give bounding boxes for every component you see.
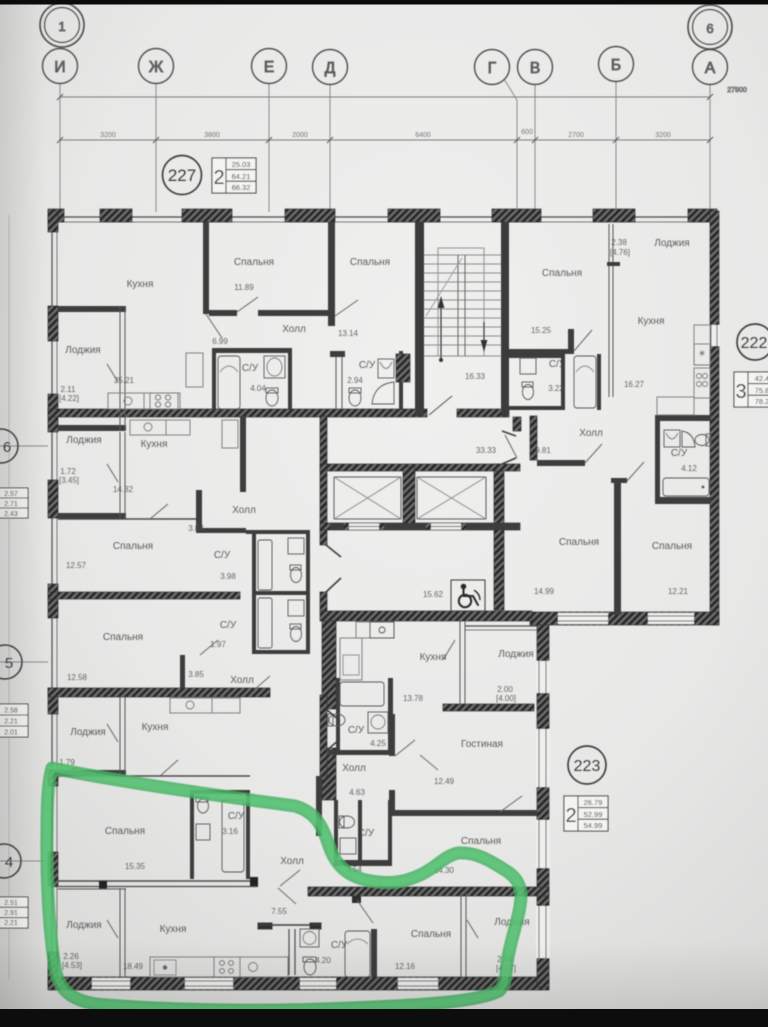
svg-text:4.25: 4.25	[370, 739, 386, 748]
svg-text:64.21: 64.21	[232, 172, 251, 181]
svg-text:7.55: 7.55	[271, 907, 287, 916]
svg-text:3.22: 3.22	[548, 384, 564, 393]
svg-text:Кухня: Кухня	[142, 722, 169, 733]
svg-text:3: 3	[735, 381, 746, 403]
svg-text:Г: Г	[488, 60, 497, 77]
svg-text:222: 222	[741, 335, 768, 352]
svg-text:Кухня: Кухня	[127, 279, 154, 290]
svg-text:15.62: 15.62	[423, 590, 444, 599]
svg-text:Лоджия: Лоджия	[66, 920, 101, 931]
svg-text:[4.76]: [4.76]	[610, 248, 630, 257]
svg-text:15.25: 15.25	[531, 326, 552, 335]
svg-text:14.32: 14.32	[113, 485, 134, 494]
svg-text:2.11: 2.11	[61, 385, 77, 394]
svg-text:25.21: 25.21	[114, 376, 135, 385]
svg-text:15.35: 15.35	[125, 862, 146, 871]
svg-text:Холл: Холл	[230, 675, 254, 686]
svg-text:Е: Е	[264, 59, 274, 76]
svg-text:Спальня: Спальня	[652, 541, 692, 552]
svg-text:27900: 27900	[727, 87, 747, 94]
svg-text:С/У: С/У	[242, 363, 259, 374]
svg-text:[4.22]: [4.22]	[59, 394, 79, 403]
svg-text:И: И	[54, 59, 65, 76]
svg-text:Лоджия: Лоджия	[70, 727, 105, 738]
svg-text:227: 227	[168, 166, 196, 185]
svg-text:Спальня: Спальня	[234, 257, 274, 268]
svg-text:Лоджия: Лоджия	[498, 649, 533, 660]
svg-text:Спальня: Спальня	[113, 541, 153, 552]
svg-text:Холл: Холл	[280, 856, 304, 867]
svg-text:✳: ✳	[699, 349, 706, 358]
svg-text:4.63: 4.63	[349, 788, 365, 797]
svg-text:26.79: 26.79	[584, 798, 603, 807]
svg-text:Кухня: Кухня	[638, 316, 665, 327]
svg-text:1.97: 1.97	[210, 640, 226, 649]
svg-text:1: 1	[58, 19, 65, 34]
svg-text:54.99: 54.99	[584, 821, 603, 830]
svg-text:25.03: 25.03	[232, 160, 251, 169]
svg-text:1.72: 1.72	[60, 467, 76, 476]
svg-text:Спальня: Спальня	[105, 826, 145, 837]
svg-text:14.99: 14.99	[534, 587, 555, 596]
svg-text:4.12: 4.12	[681, 464, 697, 473]
svg-text:Б: Б	[611, 57, 621, 74]
svg-text:Кухня: Кухня	[141, 439, 168, 450]
svg-text:2.38: 2.38	[611, 238, 627, 247]
svg-text:33.33: 33.33	[476, 446, 497, 455]
svg-text:Спальня: Спальня	[461, 836, 501, 847]
svg-text:Лоджия: Лоджия	[654, 238, 689, 249]
svg-text:Кухня: Кухня	[420, 652, 447, 663]
svg-text:11.89: 11.89	[234, 283, 254, 292]
svg-text:Холл: Холл	[282, 324, 306, 335]
svg-text:Лоджия: Лоджия	[66, 435, 101, 446]
svg-text:3.85: 3.85	[188, 670, 204, 679]
svg-text:12.49: 12.49	[434, 777, 455, 786]
svg-text:13.14: 13.14	[338, 329, 359, 338]
svg-text:С/У: С/У	[671, 448, 688, 459]
svg-text:В: В	[530, 60, 540, 77]
svg-text:Холл: Холл	[579, 428, 603, 439]
svg-text:75.8: 75.8	[755, 386, 768, 395]
svg-text:9.81: 9.81	[535, 446, 551, 455]
svg-text:Спальня: Спальня	[542, 268, 582, 279]
svg-text:Ж: Ж	[149, 59, 164, 76]
svg-text:[4.00]: [4.00]	[496, 694, 516, 703]
svg-text:С/У: С/У	[214, 550, 231, 561]
svg-text:Спальня: Спальня	[103, 632, 143, 643]
svg-text:Д: Д	[325, 60, 336, 77]
svg-text:223: 223	[574, 758, 601, 775]
svg-text:Холл: Холл	[232, 505, 256, 516]
svg-text:6.99: 6.99	[212, 337, 228, 346]
svg-text:12.21: 12.21	[668, 587, 689, 596]
svg-text:16.27: 16.27	[624, 380, 645, 389]
svg-text:С/У: С/У	[228, 811, 245, 822]
svg-text:3800: 3800	[204, 132, 220, 139]
svg-text:Спальня: Спальня	[559, 537, 599, 548]
svg-text:2: 2	[213, 167, 224, 189]
svg-text:Кухня: Кухня	[160, 924, 187, 935]
svg-text:78.2: 78.2	[755, 397, 768, 406]
svg-text:12.57: 12.57	[66, 561, 87, 570]
svg-text:2000: 2000	[292, 132, 308, 139]
svg-text:С/У: С/У	[220, 620, 237, 631]
svg-text:С/У: С/У	[549, 359, 566, 370]
svg-text:600: 600	[521, 129, 533, 136]
svg-text:С/У: С/У	[359, 360, 376, 371]
svg-text:С/У: С/У	[358, 828, 375, 839]
svg-text:С/У: С/У	[348, 725, 365, 736]
svg-text:6: 6	[706, 21, 713, 36]
svg-text:2.94: 2.94	[347, 376, 363, 385]
svg-text:3.98: 3.98	[220, 572, 236, 581]
svg-text:3.16: 3.16	[222, 827, 238, 836]
svg-text:6400: 6400	[415, 132, 431, 139]
svg-text:Лоджия: Лоджия	[65, 345, 100, 356]
svg-text:3.84: 3.84	[188, 524, 204, 533]
svg-text:[3.45]: [3.45]	[59, 476, 79, 485]
svg-text:52.99: 52.99	[584, 810, 603, 819]
svg-text:А: А	[705, 60, 716, 77]
svg-text:16.33: 16.33	[465, 372, 486, 381]
svg-text:2: 2	[565, 805, 576, 827]
svg-text:13.78: 13.78	[403, 694, 424, 703]
svg-text:66.32: 66.32	[232, 183, 251, 192]
svg-text:Холл: Холл	[342, 763, 366, 774]
svg-text:2.00: 2.00	[497, 685, 513, 694]
svg-text:2700: 2700	[568, 132, 584, 139]
svg-text:3200: 3200	[655, 132, 671, 139]
svg-text:42.4: 42.4	[755, 374, 768, 383]
svg-text:4.04: 4.04	[250, 384, 266, 393]
svg-text:Спальня: Спальня	[411, 929, 451, 940]
svg-text:3200: 3200	[100, 132, 116, 139]
svg-text:12.58: 12.58	[67, 673, 88, 682]
svg-text:Спальня: Спальня	[350, 257, 390, 268]
svg-text:Гостиная: Гостиная	[461, 739, 503, 750]
